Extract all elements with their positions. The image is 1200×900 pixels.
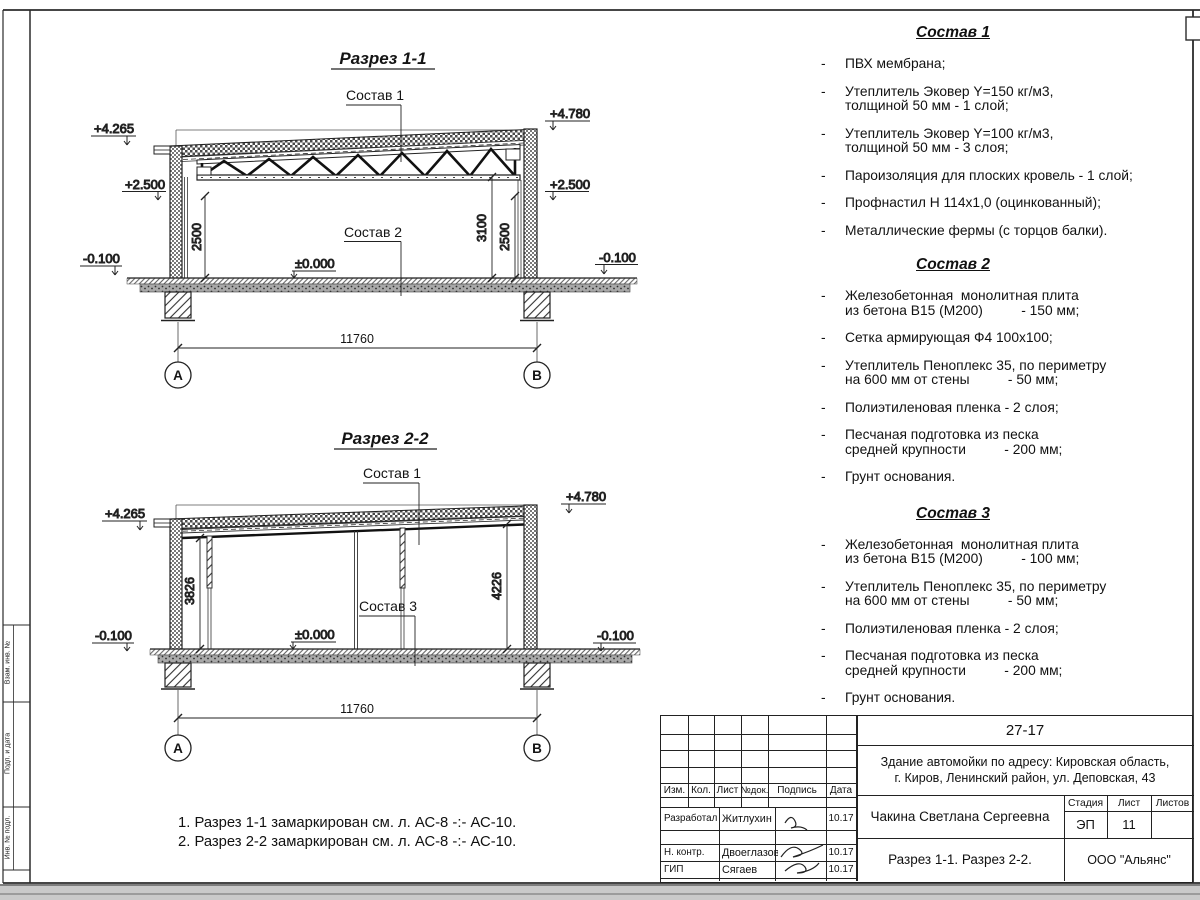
col-sign: Подпись (768, 783, 826, 797)
elev-0100-left: -0.100 (95, 628, 132, 643)
sostav-3-title: Состав 3 (818, 505, 1088, 523)
sostav-2-list: Состав 2 -Железобетонная монолитная плит… (818, 256, 1163, 485)
stage-label: Стадия (1064, 795, 1107, 811)
list-item: -Песчаная подготовка из песка средней кр… (818, 428, 1163, 457)
note-line-2: 2. Разрез 2-2 замаркирован см. л. АС-8 -… (178, 833, 516, 852)
list-item: -Железобетонная монолитная плита из бето… (818, 289, 1163, 318)
left-wall (170, 519, 182, 650)
foundation-piers (161, 663, 554, 689)
axis-letter-a: А (173, 741, 183, 756)
span-dim-text: 11760 (340, 332, 374, 346)
elev-0100-right: -0.100 (597, 628, 634, 643)
left-wall (170, 146, 182, 279)
col-doc: №док. (741, 783, 768, 797)
elev-4780-right: +4.780 (550, 106, 590, 121)
row2-role: Н. контр. (661, 844, 722, 861)
axis-letter-b: В (532, 741, 542, 756)
floor-slab (150, 649, 640, 663)
author-name: Чакина Светлана Сергеевна (856, 795, 1064, 838)
side-label-vzam: Взам. инв. № (5, 623, 12, 703)
side-label-podp: Подп. и дата (5, 714, 12, 794)
list-item: -Утеплитель Эковер Y=150 кг/м3, толщиной… (818, 85, 1163, 114)
side-label-inv: Инв. № подл. (5, 798, 12, 878)
list-item: -Утеплитель Эковер Y=100 кг/м3, толщиной… (818, 127, 1163, 156)
list-item: -Профнастил Н 114х1,0 (оцинкованный); (818, 196, 1163, 211)
sheet-label: Лист (1107, 795, 1151, 811)
callout-sostav2: Состав 2 (344, 224, 402, 240)
drawing-sheet: Разрез 1-1 (0, 0, 1200, 900)
dim-3100-right: 3100 (475, 214, 489, 242)
span-dim-text: 11760 (340, 702, 374, 716)
section-1-1: Разрез 1-1 (80, 49, 638, 388)
row3-name: Сягаев (719, 861, 778, 878)
signatures (775, 807, 826, 881)
sostav-1-list: Состав 1 -ПВХ мембрана; -Утеплитель Эков… (818, 24, 1163, 238)
section2-title: Разрез 2-2 (341, 429, 429, 448)
sheet-value: 11 (1107, 811, 1151, 838)
span-dimension: 11760 А В (165, 322, 550, 388)
row3-date: 10.17 (826, 861, 856, 878)
list-item: -Пароизоляция для плоских кровель - 1 сл… (818, 169, 1163, 184)
dim-3826-left: 3826 (183, 577, 197, 605)
col-list: Лист (714, 783, 741, 797)
right-wall (524, 505, 537, 650)
sostav-3-list: Состав 3 -Железобетонная монолитная плит… (818, 505, 1163, 706)
section1-title: Разрез 1-1 (339, 49, 426, 68)
list-item: -Металлические фермы (с торцов балки). (818, 224, 1163, 239)
section-2-2: Разрез 2-2 (92, 429, 640, 761)
row1-date: 10.17 (826, 807, 856, 830)
row1-name: Житлухин (719, 807, 778, 830)
elev-2500-left: +2.500 (125, 177, 165, 192)
compositions-panel: Состав 1 -ПВХ мембрана; -Утеплитель Эков… (818, 24, 1163, 719)
col-date: Дата (826, 783, 856, 797)
callout-sostav1: Состав 1 (363, 465, 421, 481)
elevation-marks: +4.265 +2.500 -0.100 +4.780 +2.500 -0.10… (80, 106, 638, 278)
list-item: -Железобетонная монолитная плита из бето… (818, 538, 1163, 567)
sostav-1-title: Состав 1 (818, 24, 1088, 42)
row2-name: Двоеглазов (719, 844, 778, 861)
list-item: -Утеплитель Пеноплекс 35, по периметру н… (818, 359, 1163, 388)
sheets-value (1151, 811, 1194, 838)
foundation-piers (161, 292, 554, 321)
sheet-title: Разрез 1-1. Разрез 2-2. (856, 838, 1064, 881)
elev-4265-left: +4.265 (94, 121, 134, 136)
elev-zero: ±0.000 (295, 256, 335, 271)
list-item: -Сетка армирующая Ф4 100х100; (818, 331, 1163, 346)
callouts: Состав 1 Состав 3 (359, 465, 421, 666)
scan-edge-band (0, 884, 1200, 900)
elev-4265-left: +4.265 (105, 506, 145, 521)
list-item: -Полиэтиленовая пленка - 2 слоя; (818, 401, 1163, 416)
sheets-label: Листов (1151, 795, 1194, 811)
col-izm: Изм. (661, 783, 688, 797)
list-item: -Утеплитель Пеноплекс 35, по периметру н… (818, 580, 1163, 609)
sostav-2-title: Состав 2 (818, 256, 1088, 274)
elev-zero: ±0.000 (295, 627, 335, 642)
company-name: ООО "Альянс" (1064, 838, 1194, 881)
list-item: -Грунт основания. (818, 691, 1163, 706)
doc-number: 27-17 (856, 716, 1194, 745)
callouts: Состав 1 Состав 2 (344, 87, 404, 296)
elev-4780-right: +4.780 (566, 489, 606, 504)
row2-date: 10.17 (826, 844, 856, 861)
note-line-1: 1. Разрез 1-1 замаркирован см. л. АС-8 -… (178, 814, 516, 833)
col-kol: Кол. (688, 783, 714, 797)
title-block: Изм. Кол. Лист №док. Подпись Дата Разраб… (660, 715, 1193, 883)
elev-2500-right: +2.500 (550, 177, 590, 192)
elev-0100-left: -0.100 (83, 251, 120, 266)
dim-2500-right: 2500 (498, 223, 512, 251)
right-wall (524, 129, 537, 279)
axis-letter-b: В (532, 368, 542, 383)
corner-format-box (1186, 17, 1200, 40)
height-dimensions: 3826 4226 (183, 520, 511, 653)
elev-0100-right: -0.100 (599, 250, 636, 265)
stage-value: ЭП (1064, 811, 1107, 838)
callout-sostav3: Состав 3 (359, 598, 417, 614)
dim-4226-right: 4226 (490, 572, 504, 600)
list-item: -Грунт основания. (818, 470, 1163, 485)
row3-role: ГИП (661, 861, 722, 878)
list-item: -ПВХ мембрана; (818, 57, 1163, 72)
callout-sostav1: Состав 1 (346, 87, 404, 103)
span-dimension: 11760 А В (165, 690, 550, 761)
object-name: Здание автомойки по адресу: Кировская об… (856, 745, 1194, 795)
notes: 1. Разрез 1-1 замаркирован см. л. АС-8 -… (178, 814, 516, 852)
list-item: -Полиэтиленовая пленка - 2 слоя; (818, 622, 1163, 637)
row1-role: Разработал (661, 807, 722, 830)
list-item: -Песчаная подготовка из песка средней кр… (818, 649, 1163, 678)
axis-letter-a: А (173, 368, 183, 383)
dim-2500-left: 2500 (190, 223, 204, 251)
